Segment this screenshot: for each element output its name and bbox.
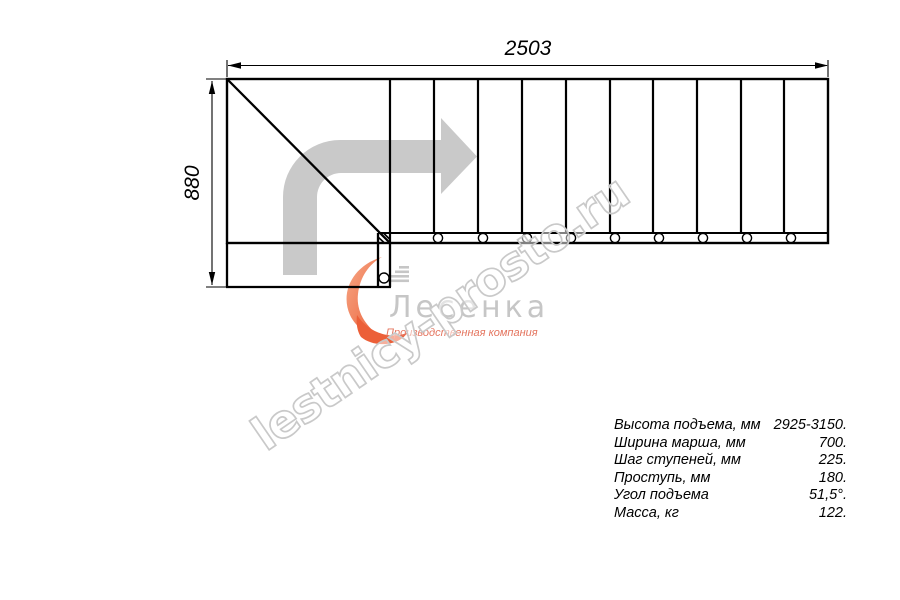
- spec-value: 122.: [819, 505, 847, 523]
- dimension-arrow: [815, 62, 828, 68]
- spec-label: Масса, кг: [614, 505, 679, 523]
- drawing-canvas: Лесенка Производственная компания: [0, 0, 900, 600]
- spec-label: Проступь, мм: [614, 470, 710, 488]
- spec-label: Высота подъема, мм: [614, 417, 761, 435]
- spec-value: 51,5°.: [809, 487, 847, 505]
- spec-row: Проступь, мм 180.: [614, 470, 847, 488]
- spec-value: 225.: [819, 452, 847, 470]
- left-dimension-label: 880: [181, 165, 204, 200]
- dimension-arrow: [209, 81, 215, 94]
- spec-label: Угол подъема: [614, 487, 709, 505]
- left-dimension: 880: [181, 79, 226, 287]
- top-dimension-label: 2503: [504, 37, 552, 60]
- spec-row: Угол подъема 51,5°.: [614, 487, 847, 505]
- spec-label: Ширина марша, мм: [614, 435, 746, 453]
- spec-row: Масса, кг 122.: [614, 505, 847, 523]
- spec-row: Ширина марша, мм 700.: [614, 435, 847, 453]
- specs-table: Высота подъема, мм 2925-3150. Ширина мар…: [614, 417, 847, 522]
- top-dimension: 2503: [227, 37, 828, 77]
- spec-value: 700.: [819, 435, 847, 453]
- spec-row: Шаг ступеней, мм 225.: [614, 452, 847, 470]
- spec-label: Шаг ступеней, мм: [614, 452, 741, 470]
- dimension-arrow: [209, 272, 215, 285]
- spec-row: Высота подъема, мм 2925-3150.: [614, 417, 847, 435]
- spec-value: 2925-3150.: [774, 417, 847, 435]
- spec-value: 180.: [819, 470, 847, 488]
- direction-arrow-icon: [283, 118, 477, 275]
- dimension-arrow: [228, 62, 241, 68]
